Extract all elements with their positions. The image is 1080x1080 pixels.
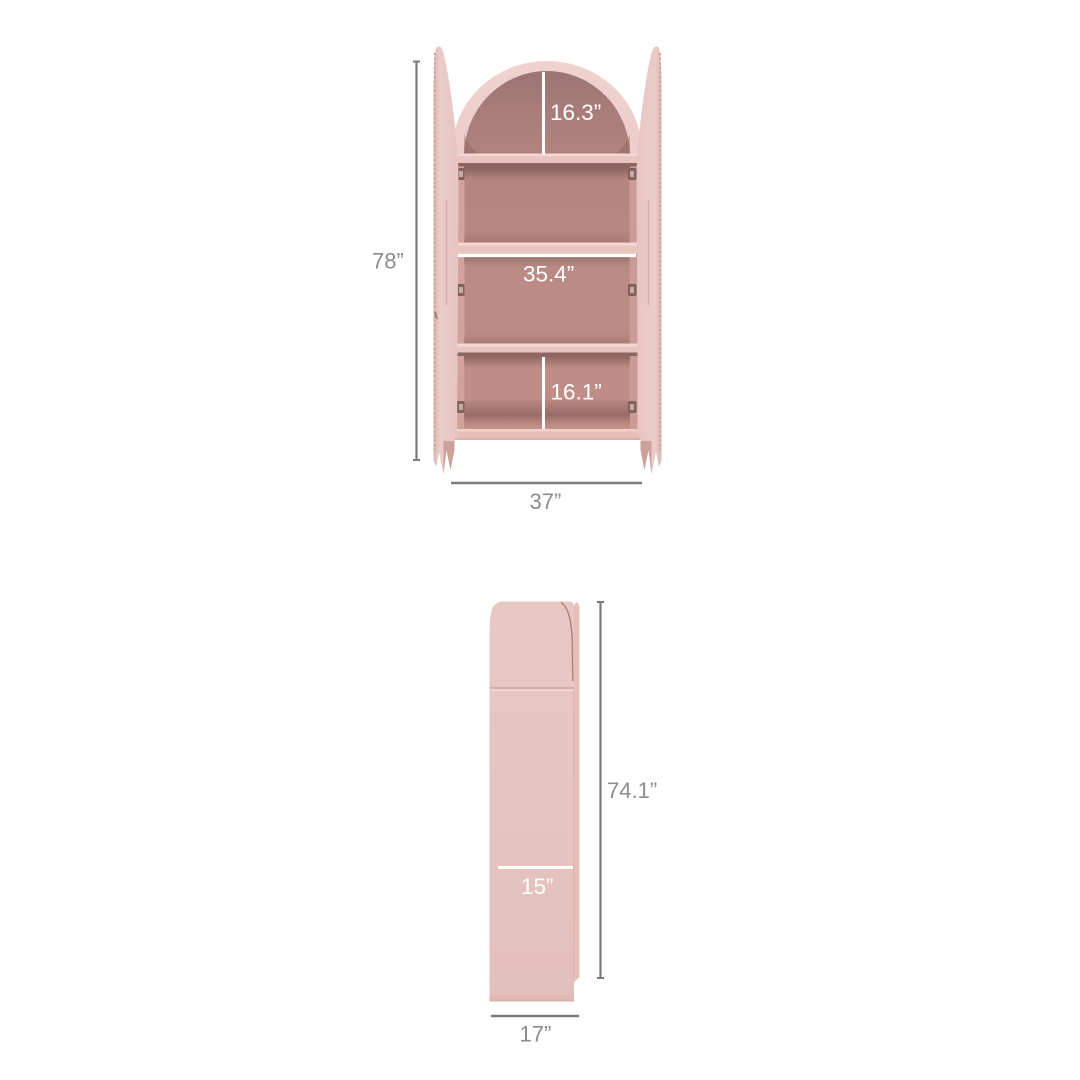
svg-text:74.1”: 74.1” (607, 778, 657, 803)
svg-text:37”: 37” (530, 489, 562, 514)
svg-text:16.1”: 16.1” (551, 380, 602, 405)
svg-text:35.4”: 35.4” (523, 262, 574, 287)
svg-text:15”: 15” (521, 874, 554, 899)
svg-text:17”: 17” (520, 1022, 552, 1047)
svg-text:78”: 78” (372, 249, 404, 274)
svg-text:16.3”: 16.3” (550, 100, 601, 125)
